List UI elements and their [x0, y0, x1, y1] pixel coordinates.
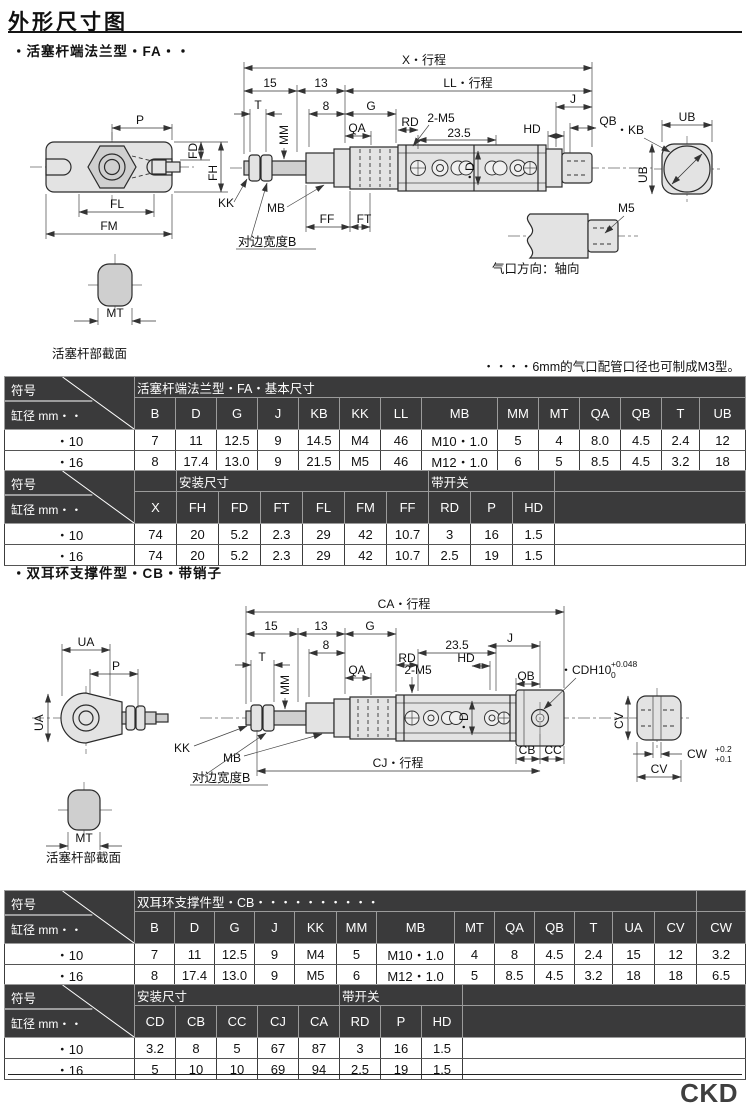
column-header: QA [495, 912, 535, 944]
value-cell: 17.4 [175, 965, 215, 986]
value-cell [555, 524, 746, 545]
column-header: FM [345, 492, 387, 524]
value-cell: 9 [255, 965, 295, 986]
column-header: D [175, 912, 215, 944]
value-cell: 74 [135, 524, 177, 545]
dim-label: FM [100, 219, 117, 233]
tolerance-upper: +0.2 [715, 744, 732, 754]
value-cell: M10・1.0 [422, 430, 498, 451]
value-cell: M5 [340, 451, 381, 472]
table-row: ・1071112.59M45M10・1.0484.52.415123.2 [5, 944, 746, 965]
column-header-filler [463, 1006, 746, 1038]
cb-type-dimension-drawing: UA P UA KK MT 活塞杆部截面 [4, 584, 746, 884]
value-cell: 12 [655, 944, 697, 965]
value-cell: M12・1.0 [422, 451, 498, 472]
value-cell: 20 [177, 524, 219, 545]
port-direction-caption: 气口方向：轴向 [492, 261, 580, 276]
rod-end-view: ・KB UB UB [616, 110, 720, 202]
value-cell: 1.5 [422, 1038, 463, 1059]
table-row: ・16817.413.09M56M12・1.058.54.53.218186.5 [5, 965, 746, 986]
dim-label: MM [277, 125, 291, 145]
corner-bore-label: 缸径 mm・・ [11, 921, 82, 938]
column-header: T [662, 398, 700, 430]
value-cell: 4 [539, 430, 580, 451]
column-header: MB [422, 398, 498, 430]
dim-label: FT [357, 212, 372, 226]
value-cell: 3.2 [662, 451, 700, 472]
value-cell: M10・1.0 [377, 944, 455, 965]
dim-label: P [112, 659, 120, 673]
value-cell: 87 [299, 1038, 340, 1059]
bore-size-cell: ・16 [5, 965, 135, 986]
dim-label: QB [599, 114, 616, 128]
clevis-end-view: CV CW +0.2 +0.1 CV [612, 688, 732, 782]
column-group-filler [463, 985, 746, 1006]
corner-symbol-label: 符号 [11, 380, 36, 399]
value-cell: 18 [613, 965, 655, 986]
dim-label: CB [519, 743, 536, 757]
column-group-header: 安装尺寸 [135, 985, 340, 1006]
bore-size-cell: ・10 [5, 524, 135, 545]
dim-label: KK [218, 196, 234, 210]
cylinder-side-view: ・D [230, 145, 652, 191]
dim-label: ・KB [616, 123, 644, 137]
value-cell: 8 [495, 944, 535, 965]
section2-heading: ・双耳环支撑件型・CB・带销子 [12, 562, 222, 582]
dim-label: 15 [263, 76, 277, 90]
column-header: HD [513, 492, 555, 524]
dim-label: MB [267, 201, 285, 215]
value-cell: 2.3 [261, 545, 303, 566]
value-cell: 13.0 [215, 965, 255, 986]
column-header: MT [539, 398, 580, 430]
dim-label: T [258, 650, 266, 664]
column-header: B [135, 912, 175, 944]
column-header: UB [700, 398, 746, 430]
flats-label: 对边宽度B [192, 770, 250, 785]
dim-label: FF [320, 212, 335, 226]
dim-label: 8 [323, 99, 330, 113]
column-header: J [255, 912, 295, 944]
value-cell: 4.5 [535, 965, 575, 986]
dim-label: J [507, 631, 513, 645]
value-cell: 5 [498, 430, 539, 451]
column-header: G [217, 398, 258, 430]
flats-label: 对边宽度B [238, 234, 296, 249]
tolerance-lower: 0 [611, 670, 616, 680]
value-cell: 14.5 [299, 430, 340, 451]
dim-label: X・行程 [402, 52, 446, 67]
column-header: B [135, 398, 176, 430]
dim-label: LL・行程 [443, 75, 492, 90]
value-cell: 4.5 [535, 944, 575, 965]
value-cell: 3 [429, 524, 471, 545]
value-cell: 46 [381, 451, 422, 472]
column-header: G [215, 912, 255, 944]
column-header: RD [429, 492, 471, 524]
value-cell: 9 [258, 451, 299, 472]
value-cell: 67 [258, 1038, 299, 1059]
value-cell: 4 [455, 944, 495, 965]
value-cell: 18 [700, 451, 746, 472]
dim-label: MM [278, 675, 292, 695]
column-header: FD [219, 492, 261, 524]
table-corner-header: 符号 缸径 mm・・ [5, 377, 135, 430]
corner-symbol-label: 符号 [11, 474, 36, 493]
value-cell: 11 [176, 430, 217, 451]
dim-label: T [254, 98, 262, 112]
corner-symbol-label: 符号 [11, 894, 36, 913]
value-cell: 5 [455, 965, 495, 986]
value-cell: 1.5 [513, 524, 555, 545]
value-cell: 8.0 [580, 430, 621, 451]
value-cell: 1.5 [513, 545, 555, 566]
column-group-header: 带开关 [340, 985, 463, 1006]
dim-label: UA [78, 635, 95, 649]
column-header: X [135, 492, 177, 524]
value-cell: 10.7 [387, 524, 429, 545]
column-header-filler [555, 492, 746, 524]
column-header: LL [381, 398, 422, 430]
value-cell: 3.2 [575, 965, 613, 986]
clevis-front-view: UA P UA KK [32, 635, 247, 755]
column-header: CV [655, 912, 697, 944]
column-header: CC [217, 1006, 258, 1038]
value-cell: 8.5 [580, 451, 621, 472]
cb-mounting-dimensions-table: 符号 缸径 mm・・ 安装尺寸带开关 CDCBCCCJCARDPHD ・103.… [4, 984, 746, 1080]
value-cell: 6 [498, 451, 539, 472]
table-corner-header: 符号 缸径 mm・・ [5, 985, 135, 1038]
value-cell: 8 [135, 451, 176, 472]
value-cell: 9 [255, 944, 295, 965]
value-cell: 12 [700, 430, 746, 451]
dim-label: 13 [314, 619, 328, 633]
value-cell [463, 1038, 746, 1059]
column-header: CB [176, 1006, 217, 1038]
value-cell [555, 545, 746, 566]
dim-label: HD [457, 651, 475, 665]
column-header: QA [580, 398, 621, 430]
value-cell: 7 [135, 430, 176, 451]
column-header: FH [177, 492, 219, 524]
column-header: T [575, 912, 613, 944]
column-header: KB [299, 398, 340, 430]
value-cell: 3.2 [135, 1038, 176, 1059]
value-cell: 8 [176, 1038, 217, 1059]
ckd-logo: CKD [680, 1078, 738, 1106]
dim-label: MT [106, 306, 124, 320]
column-header: P [471, 492, 513, 524]
value-cell: 7 [135, 944, 175, 965]
value-cell: 4.5 [621, 430, 662, 451]
value-cell: 5 [337, 944, 377, 965]
dim-label: CA・行程 [378, 596, 431, 611]
value-cell: 9 [258, 430, 299, 451]
dim-label: 23.5 [447, 126, 471, 140]
table-row: ・16817.413.0921.5M546M12・1.0658.54.53.21… [5, 451, 746, 472]
dim-label: 2-M5 [427, 111, 455, 125]
dim-label: MT [75, 831, 93, 845]
dim-label: 15 [264, 619, 278, 633]
column-header: CA [299, 1006, 340, 1038]
column-header: FT [261, 492, 303, 524]
value-cell: M4 [295, 944, 337, 965]
dim-label: UA [32, 714, 46, 731]
dim-label: 23.5 [445, 638, 469, 652]
value-cell: 16 [381, 1038, 422, 1059]
column-header: KK [340, 398, 381, 430]
column-header: FF [387, 492, 429, 524]
column-header: P [381, 1006, 422, 1038]
column-header: KK [295, 912, 337, 944]
dim-label: ・CDH10 [560, 663, 612, 677]
tolerance-lower: +0.1 [715, 754, 732, 764]
dim-label: 13 [314, 76, 328, 90]
fa-basic-dimensions-table: 符号 缸径 mm・・ 活塞杆端法兰型・FA・基本尺寸 BDGJKBKKLLMBM… [4, 376, 746, 472]
value-cell: 5 [539, 451, 580, 472]
dim-label: M5 [618, 201, 635, 215]
value-cell: 4.5 [621, 451, 662, 472]
value-cell: 18 [655, 965, 697, 986]
dim-label: FH [206, 165, 220, 181]
corner-bore-label: 缸径 mm・・ [11, 1015, 82, 1032]
dim-label: CJ・行程 [373, 755, 424, 770]
column-header: MM [498, 398, 539, 430]
side-view-dimensions: CA・行程 15 13 G 8 23.5 RD QA 2-M5 T [190, 596, 638, 785]
axial-port-view: M5 气口方向：轴向 [492, 201, 638, 276]
value-cell: 21.5 [299, 451, 340, 472]
column-group-header: 带开关 [429, 471, 555, 492]
dim-label: P [136, 113, 144, 127]
table-corner-header: 符号 缸径 mm・・ [5, 891, 135, 944]
dim-label: 2-M5 [404, 663, 432, 677]
column-group-filler [697, 891, 746, 912]
value-cell: 2.4 [662, 430, 700, 451]
dim-label: G [365, 619, 374, 633]
dim-label: QB [517, 669, 534, 683]
value-cell: 29 [303, 545, 345, 566]
column-group-header: 安装尺寸 [177, 471, 429, 492]
value-cell: 15 [613, 944, 655, 965]
rod-section-caption: 活塞杆部截面 [52, 346, 127, 361]
dim-label: CV [651, 762, 668, 776]
dim-label: CW [687, 747, 708, 761]
corner-symbol-label: 符号 [11, 988, 36, 1007]
value-cell: 17.4 [176, 451, 217, 472]
title-rule [8, 31, 742, 33]
column-group-header: 双耳环支撑件型・CB・・・・・・・・・・ [135, 891, 697, 912]
dim-label: UB [636, 166, 650, 183]
value-cell: 6.5 [697, 965, 746, 986]
column-header: MT [455, 912, 495, 944]
value-cell: 5.2 [219, 545, 261, 566]
column-header: RD [340, 1006, 381, 1038]
column-header: MM [337, 912, 377, 944]
column-header: D [176, 398, 217, 430]
value-cell: 42 [345, 545, 387, 566]
value-cell: 13.0 [217, 451, 258, 472]
catalog-page: 外形尺寸图 ・活塞杆端法兰型・FA・・ P FD [0, 0, 750, 1106]
dim-label: ・D [457, 712, 471, 733]
port-note: ・・・・6mm的气口配管口径也可制成M3型。 [482, 356, 740, 375]
dim-label: FD [186, 143, 200, 159]
dim-label: G [366, 99, 375, 113]
table-row: ・1074205.22.3294210.73161.5 [5, 524, 746, 545]
dim-label: ・D [463, 162, 477, 183]
dim-label: KK [174, 741, 190, 755]
value-cell: 46 [381, 430, 422, 451]
value-cell: M4 [340, 430, 381, 451]
dim-label: MB [223, 751, 241, 765]
corner-bore-label: 缸径 mm・・ [11, 501, 82, 518]
rod-section-caption: 活塞杆部截面 [46, 850, 121, 865]
column-group-header: 活塞杆端法兰型・FA・基本尺寸 [135, 377, 746, 398]
value-cell: 3 [340, 1038, 381, 1059]
value-cell: 42 [345, 524, 387, 545]
fa-mounting-dimensions-table: 符号 缸径 mm・・ 安装尺寸带开关 XFHFDFTFLFMFFRDPHD ・1… [4, 470, 746, 566]
rod-cross-section: MT 活塞杆部截面 [52, 254, 156, 361]
dim-label: J [570, 92, 576, 106]
bore-size-cell: ・10 [5, 430, 135, 451]
value-cell: 16 [471, 524, 513, 545]
rod-cross-section: MT 活塞杆部截面 [46, 782, 122, 865]
column-header: HD [422, 1006, 463, 1038]
dim-label: 8 [323, 638, 330, 652]
value-cell: 2.5 [429, 545, 471, 566]
column-group-filler [135, 471, 177, 492]
dim-label: UB [679, 110, 696, 124]
value-cell: 11 [175, 944, 215, 965]
column-header: UA [613, 912, 655, 944]
table-corner-header: 符号 缸径 mm・・ [5, 471, 135, 524]
cylinder-side-view: ・D [200, 690, 628, 746]
dim-label: CV [612, 712, 626, 729]
dim-label: QA [348, 121, 365, 135]
value-cell: M5 [295, 965, 337, 986]
value-cell: 19 [471, 545, 513, 566]
value-cell: 2.3 [261, 524, 303, 545]
dim-label: RD [401, 115, 419, 129]
page-footer: CKD [8, 1074, 742, 1105]
column-header: J [258, 398, 299, 430]
bore-size-cell: ・10 [5, 1038, 135, 1059]
column-header: FL [303, 492, 345, 524]
dim-label: HD [523, 122, 541, 136]
table-row: ・1071112.5914.5M446M10・1.0548.04.52.412 [5, 430, 746, 451]
dim-label: FL [110, 197, 124, 211]
value-cell: 10.7 [387, 545, 429, 566]
bore-size-cell: ・10 [5, 944, 135, 965]
value-cell: 2.4 [575, 944, 613, 965]
column-header: CD [135, 1006, 176, 1038]
value-cell: M12・1.0 [377, 965, 455, 986]
column-header: CW [697, 912, 746, 944]
value-cell: 8.5 [495, 965, 535, 986]
value-cell: 3.2 [697, 944, 746, 965]
fa-type-dimension-drawing: P FD FH FL FM MT 活塞杆部截面 [4, 52, 746, 370]
tolerance-upper: +0.048 [611, 659, 638, 669]
column-header: QB [621, 398, 662, 430]
value-cell: 5 [217, 1038, 258, 1059]
dim-label: QA [348, 663, 365, 677]
column-group-filler [555, 471, 746, 492]
column-header: MB [377, 912, 455, 944]
flange-front-view: P FD FH FL FM [30, 113, 228, 239]
value-cell: 6 [337, 965, 377, 986]
value-cell: 8 [135, 965, 175, 986]
cb-basic-dimensions-table: 符号 缸径 mm・・ 双耳环支撑件型・CB・・・・・・・・・・ BDGJKKMM… [4, 890, 746, 986]
value-cell: 5.2 [219, 524, 261, 545]
table-row: ・103.28567873161.5 [5, 1038, 746, 1059]
bore-size-cell: ・16 [5, 451, 135, 472]
value-cell: 29 [303, 524, 345, 545]
value-cell: 12.5 [217, 430, 258, 451]
column-header: CJ [258, 1006, 299, 1038]
corner-bore-label: 缸径 mm・・ [11, 407, 82, 424]
dim-label: CC [544, 743, 562, 757]
column-header: QB [535, 912, 575, 944]
value-cell: 12.5 [215, 944, 255, 965]
